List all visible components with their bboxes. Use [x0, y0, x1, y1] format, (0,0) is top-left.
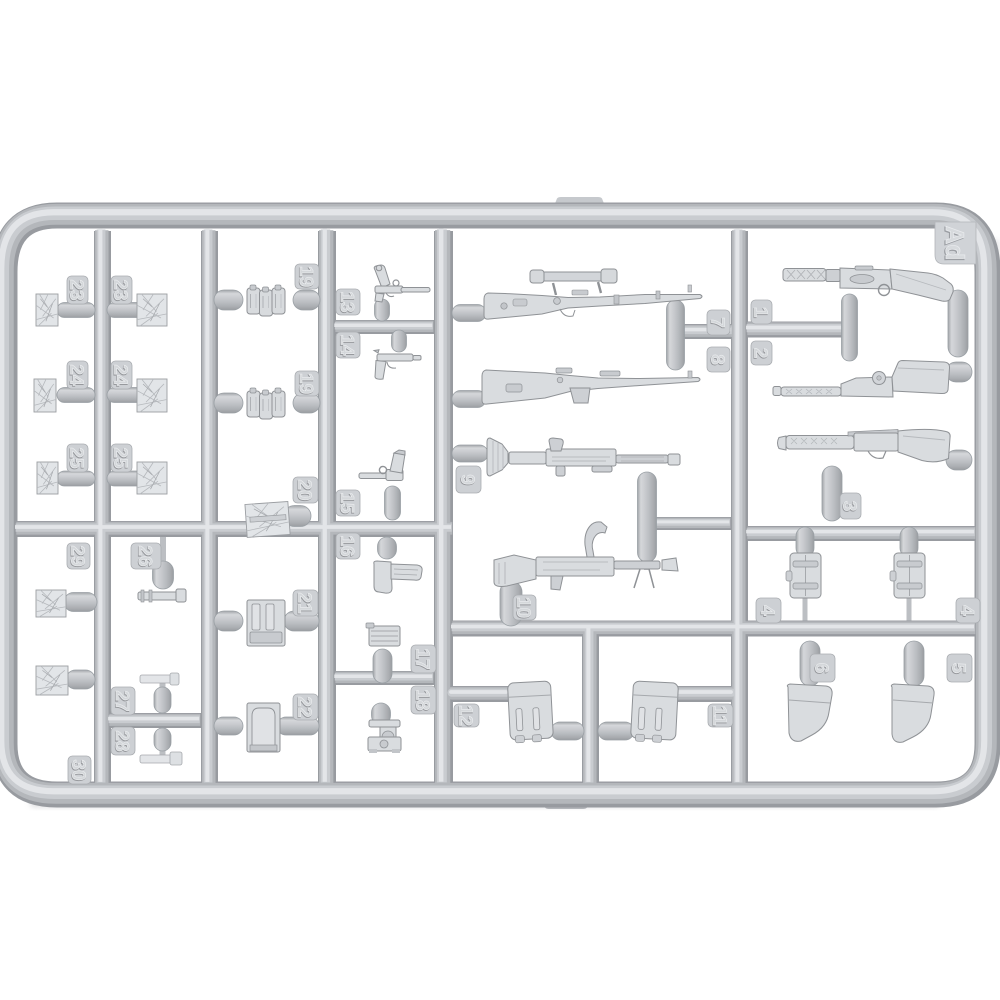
svg-text:25: 25	[66, 447, 87, 469]
svg-text:13: 13	[336, 291, 357, 312]
svg-text:3: 3	[839, 501, 860, 512]
svg-text:17: 17	[412, 648, 433, 669]
svg-text:15: 15	[336, 492, 357, 514]
svg-text:29: 29	[67, 545, 88, 566]
svg-text:30: 30	[68, 759, 89, 780]
svg-text:26: 26	[134, 545, 155, 566]
svg-text:20: 20	[294, 479, 315, 500]
svg-text:28: 28	[111, 730, 132, 751]
svg-text:4: 4	[956, 605, 977, 616]
svg-text:5: 5	[948, 663, 969, 674]
svg-text:16: 16	[336, 535, 357, 556]
svg-text:10: 10	[513, 597, 534, 618]
svg-text:1: 1	[750, 307, 771, 318]
svg-text:22: 22	[294, 696, 315, 717]
svg-text:18: 18	[412, 689, 433, 710]
svg-text:11: 11	[709, 705, 730, 726]
svg-text:2: 2	[750, 348, 771, 359]
svg-text:19: 19	[295, 373, 316, 394]
svg-text:8: 8	[707, 354, 728, 365]
svg-text:4: 4	[757, 605, 778, 616]
svg-text:25: 25	[110, 447, 131, 469]
svg-text:14: 14	[336, 334, 357, 356]
svg-text:21: 21	[294, 592, 315, 614]
svg-text:6: 6	[811, 663, 832, 674]
svg-text:23: 23	[110, 279, 131, 300]
svg-text:24: 24	[110, 364, 131, 386]
svg-text:19: 19	[295, 266, 316, 287]
svg-text:23: 23	[66, 279, 87, 300]
svg-text:9: 9	[457, 474, 478, 485]
svg-text:12: 12	[455, 705, 476, 726]
svg-text:7: 7	[707, 317, 728, 328]
svg-text:Ad: Ad	[940, 226, 970, 261]
svg-text:27: 27	[111, 690, 132, 711]
svg-text:24: 24	[66, 364, 87, 386]
